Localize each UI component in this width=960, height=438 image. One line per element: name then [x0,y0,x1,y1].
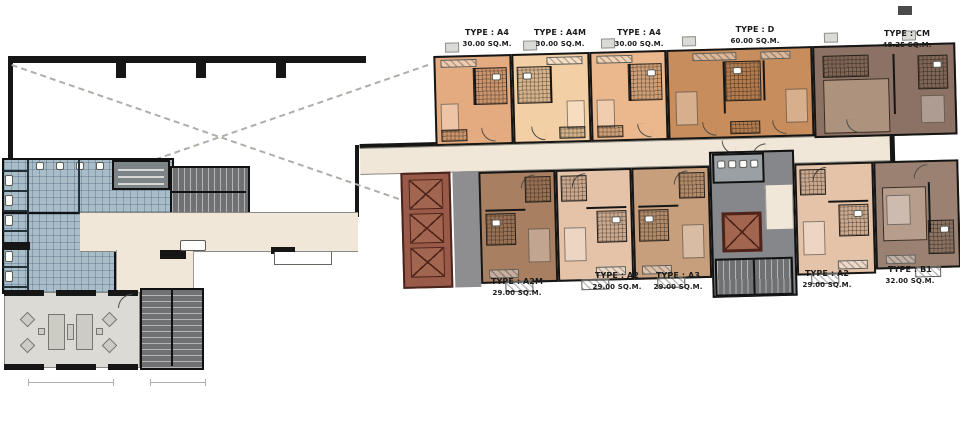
equipment-room [112,160,170,190]
stair-landing-line [172,191,246,193]
lounge-wall-seg [108,290,138,296]
ac-ledge [824,32,838,42]
balcony [692,52,736,61]
lounge-sofa [76,314,93,350]
toilet-fixture [523,72,532,79]
stair-upper-left [170,166,250,218]
elevator-car [409,213,444,244]
unit-a2-left [555,168,634,282]
equipment-line [118,176,164,178]
stall-divider [3,170,27,172]
bathroom-tiles [628,63,663,101]
bathroom-tiles [928,219,955,254]
unit-area: 32.00 SQ.M. [868,276,952,286]
stair-service [715,257,794,297]
unit-type: TYPE : A3 [636,270,720,282]
toilet-fixture [5,195,13,206]
kitchen-tiles [597,125,623,138]
balcony [760,51,790,60]
toilet-fixture [733,67,742,74]
restroom-stall-wall [27,160,29,292]
unit-area: 30.00 SQ.M. [445,39,529,49]
toilet-fixture [5,251,13,262]
kitchen-tiles [559,126,585,139]
bed [597,99,616,127]
kitchen-tiles [730,121,760,135]
equipment-fixture [750,160,758,168]
column [116,63,126,78]
lounge-table [67,324,74,340]
bathroom-tiles [838,204,869,237]
stall-divider [3,286,27,288]
inner-wall [892,54,896,114]
lounge-wall-seg [56,364,96,370]
ac-ledge [682,36,696,46]
dimension-tick [28,379,29,386]
unit-label-bottom-5: TYPE : B1 32.00 SQ.M. [868,264,952,286]
balcony [596,55,632,64]
unit-label-top-4: TYPE : D 60.00 SQ.M. [713,24,797,46]
service-lobby [765,185,794,230]
unit-label-bottom-4: TYPE : A2 29.00 SQ.M. [785,268,869,290]
unit-area: 30.00 SQ.M. [518,39,602,49]
corridor-balcony [274,252,332,265]
stall-divider [3,190,27,192]
dimension-tick [113,379,114,386]
toilet-fixture [492,73,501,80]
unit-b1 [873,159,960,269]
unit-label-top-3: TYPE : A4 30.00 SQ.M. [597,27,681,49]
entry-bath-tiles [799,169,826,196]
stair-bottom-left [140,288,204,370]
balcony [440,59,476,68]
unit-area: 30.00 SQ.M. [597,39,681,49]
unit-label-top-2: TYPE : A4M 30.00 SQ.M. [518,27,602,49]
unit-a2m [478,170,558,284]
bathroom-tiles [485,213,516,246]
toilet-fixture [933,61,942,68]
inner-wall [828,200,868,203]
inner-wall [763,60,766,100]
toilet-fixture [853,210,862,217]
balcony [546,56,582,65]
unit-type: TYPE : A2 [785,268,869,280]
mailbox-fixture [180,240,206,251]
unit-area: 48.25 SQ.M. [865,40,949,50]
bathroom-tiles [473,67,508,105]
restroom-wall-chunk [2,242,30,250]
door-arc [531,126,545,140]
stall-divider [3,210,27,212]
bathroom-tiles [822,55,869,78]
unit-a4-2 [589,50,668,142]
void-left-wall [8,56,13,164]
unit-a3 [631,166,712,280]
bathroom-tiles [725,60,762,101]
dimension-tick [150,379,151,386]
equipment-fixture [717,160,725,168]
unit-type: TYPE : A4 [597,27,681,39]
stall-divider [3,230,27,232]
bed [886,195,911,226]
unit-cm [812,42,957,138]
elevator-lobby [452,171,481,288]
door-arc [481,127,495,141]
toilet-fixture [5,271,13,282]
stair-divider [171,290,173,366]
toilet-fixture [645,215,654,222]
unit-type: TYPE : A2M [475,276,559,288]
elevator-car [409,179,444,210]
corridor-wall-stub [160,250,186,259]
lounge-side-table [96,328,103,335]
elevator-car-service [721,212,762,253]
dimension-line [28,382,114,383]
toilet-fixture [492,219,501,226]
ahu-room [712,152,765,183]
toilet-fixture [5,215,13,226]
unit-label-bottom-1: TYPE : A2M 29.00 SQ.M. [475,276,559,298]
unit-type: TYPE : A4 [445,27,529,39]
bathroom-tiles [596,210,627,243]
bed [528,228,551,263]
unit-label-bottom-3: TYPE : A3 29.00 SQ.M. [636,270,720,292]
unit-a4m [511,52,591,144]
bed [803,221,826,256]
door-arc [772,120,786,134]
bed [920,95,945,124]
equipment-line [118,183,164,185]
lounge-wall-seg [108,364,138,370]
unit-label-top-1: TYPE : A4 30.00 SQ.M. [445,27,529,49]
toilet-fixture [612,216,621,223]
unit-type: TYPE : B1 [868,264,952,276]
unit-type: TYPE : CM [865,28,949,40]
unit-d [666,46,814,140]
sink-fixture [56,162,64,170]
kitchen-tiles [441,129,467,142]
lounge-wall-seg [4,290,44,296]
inner-wall [638,205,678,208]
toilet-fixture [647,69,656,76]
lounge-wall-seg [56,290,96,296]
entry-bath-tiles [560,175,587,202]
bed [567,100,586,128]
void-top-wall [8,56,366,63]
door-arc [702,122,716,136]
door-arc [913,164,927,178]
bed [682,224,705,259]
elevator-bank [400,172,453,289]
equipment-fixture [739,160,747,168]
bed [564,227,587,262]
balcony [886,254,916,264]
sink-fixture [96,162,104,170]
bathroom-tiles [638,209,669,242]
inner-wall [550,66,553,103]
corridor-left [80,212,358,252]
equipment-line [118,169,164,171]
dimension-line [150,382,206,383]
unit-area: 29.00 SQ.M. [475,288,559,298]
inner-wall [586,206,626,209]
toilet-fixture [940,226,949,233]
bed [675,91,698,126]
bed [785,88,808,123]
toilet-fixture [5,175,13,186]
unit-type: TYPE : A4M [518,27,602,39]
sink-fixture [36,162,44,170]
dimension-tick [205,379,206,386]
unit-a4-1 [433,54,513,146]
floor-plan: TYPE : A4 30.00 SQ.M. TYPE : A4M 30.00 S… [0,0,960,438]
elevator-car [410,247,445,278]
bathroom-tiles [917,55,948,90]
bed [441,103,460,131]
unit-area: 60.00 SQ.M. [713,36,797,46]
amenity-inner-wall [78,160,80,214]
stall-divider [3,266,27,268]
entry-bath-tiles [524,176,551,203]
column [276,63,286,78]
equipment-fixture [728,160,736,168]
bathroom-tiles [517,66,552,104]
unit-a2-right [794,162,876,276]
entry-bath-tiles [678,172,705,199]
column [196,63,206,78]
lounge-wall-seg [4,364,44,370]
unit-type: TYPE : D [713,24,797,36]
stair-landing-line [753,260,756,294]
unit-area: 29.00 SQ.M. [785,280,869,290]
door-arc [637,123,651,137]
unit-label-top-5: TYPE : CM 48.25 SQ.M. [865,28,949,50]
lounge-sofa [48,314,65,350]
unit-area: 29.00 SQ.M. [636,282,720,292]
inner-wall [485,209,525,212]
lounge-side-table [38,328,45,335]
